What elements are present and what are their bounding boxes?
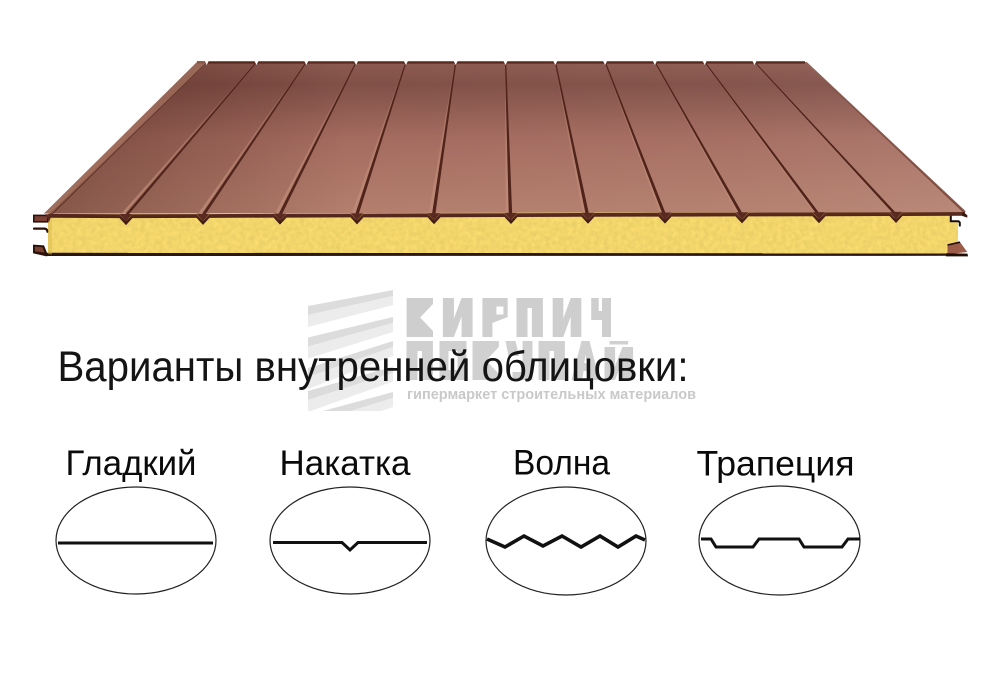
- svg-text:Гладкий: Гладкий: [66, 444, 197, 483]
- svg-text:Варианты внутренней облицовки:: Варианты внутренней облицовки:: [58, 344, 689, 391]
- svg-text:Накатка: Накатка: [280, 444, 412, 483]
- svg-text:Волна: Волна: [513, 444, 611, 483]
- svg-text:Трапеция: Трапеция: [697, 445, 855, 484]
